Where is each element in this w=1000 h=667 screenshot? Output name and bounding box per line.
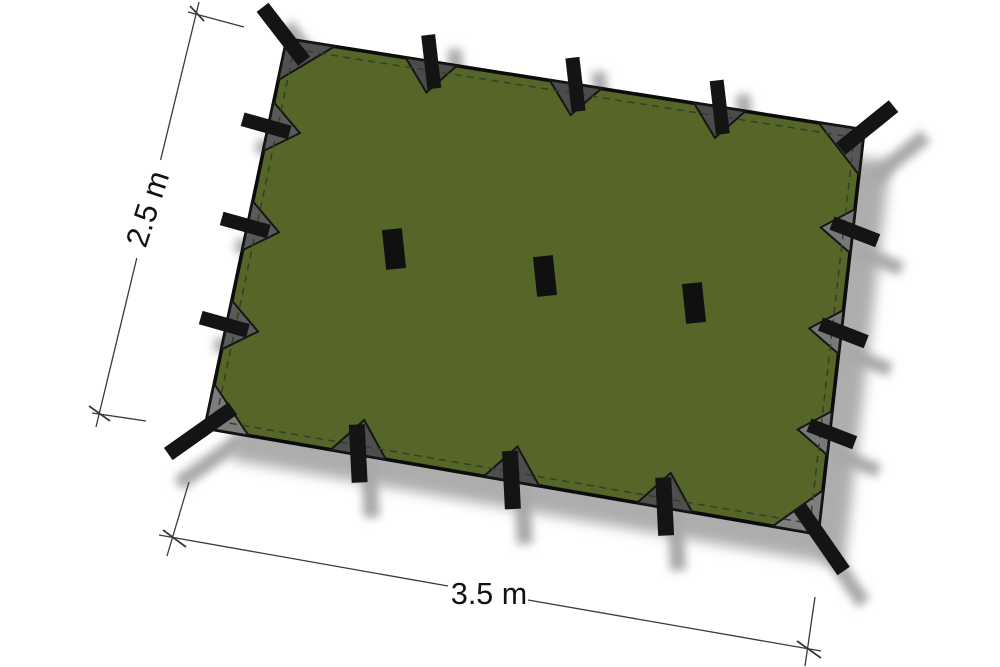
svg-text:3.5 m: 3.5 m bbox=[451, 577, 527, 611]
